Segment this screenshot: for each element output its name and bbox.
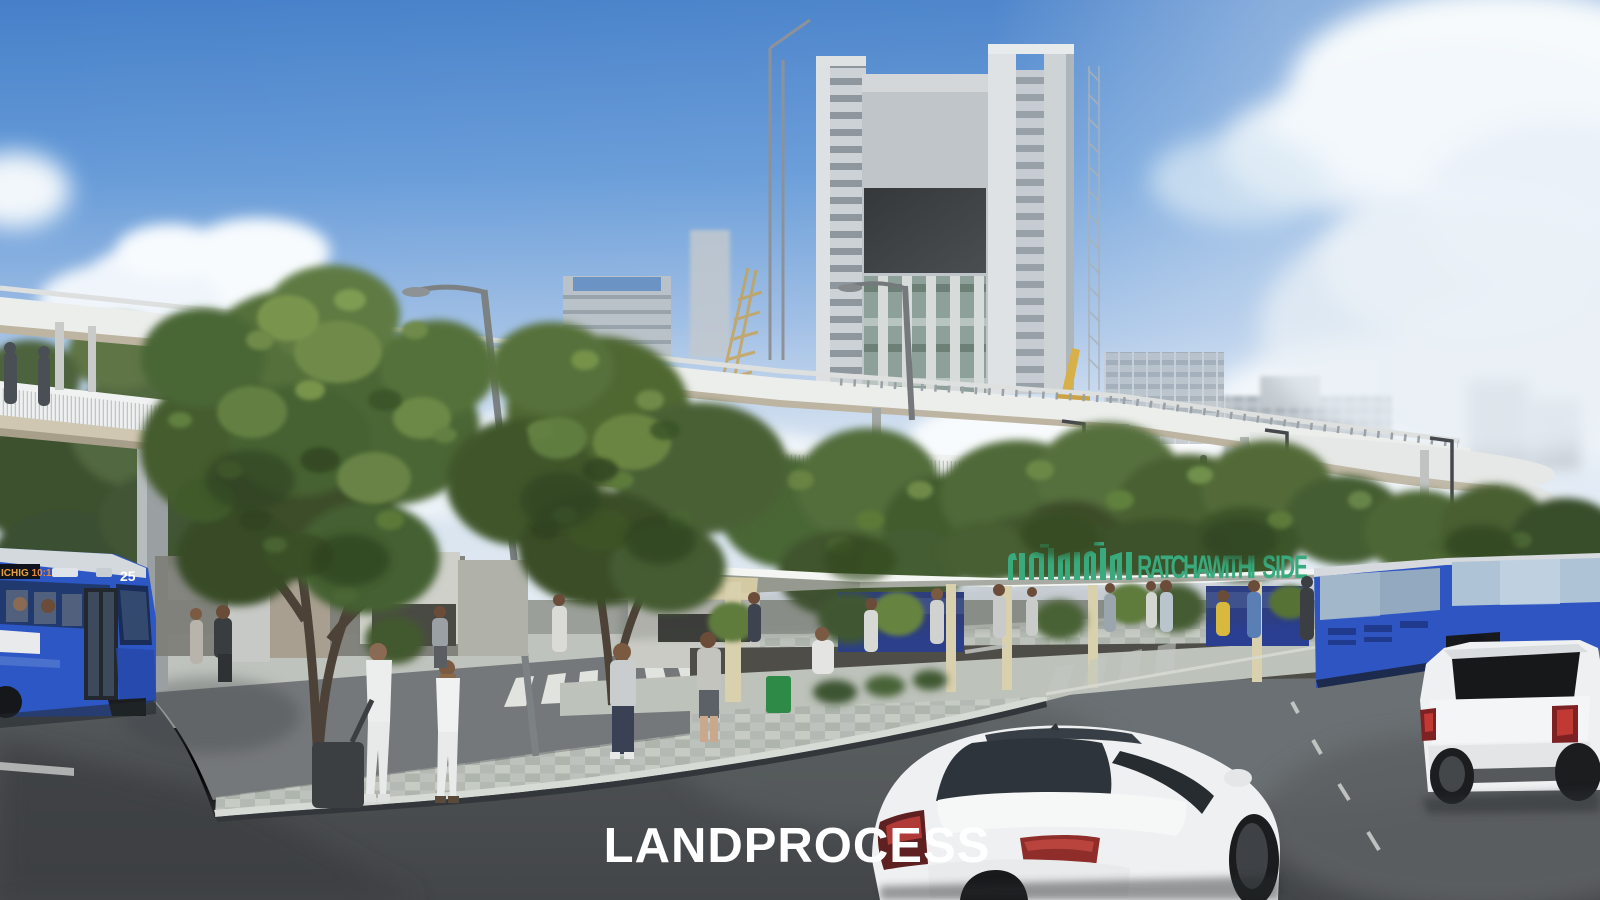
svg-text:SIDE: SIDE xyxy=(1262,550,1308,586)
svg-text:ICHIG 10:12: ICHIG 10:12 xyxy=(1,568,58,579)
svg-text:25: 25 xyxy=(120,568,136,584)
svg-text:LANDPROCESS: LANDPROCESS xyxy=(604,819,991,873)
